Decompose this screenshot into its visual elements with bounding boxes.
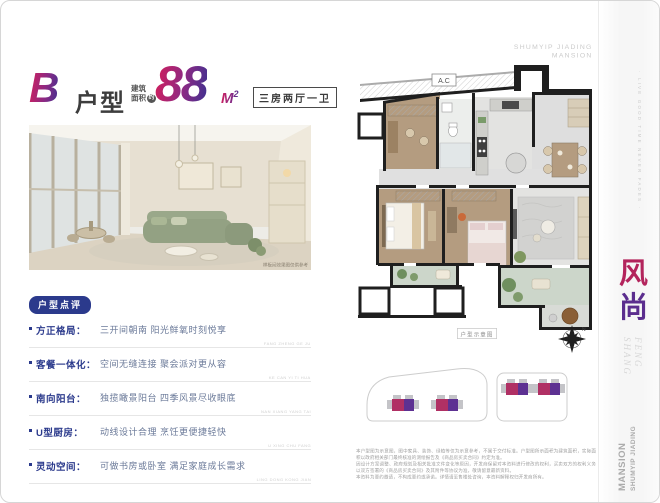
review-section: 户型点评 方正格局： 三开间朝南 阳光鲜氧时刻悦享 FANG ZHENG GE … bbox=[29, 295, 311, 484]
layout-tag: 三房两厅一卫 bbox=[253, 87, 337, 108]
ac-label: A.C bbox=[438, 78, 450, 85]
area-prefix-bottom: 面积 bbox=[131, 93, 146, 102]
feature-note: NAN XIANG YANG TAI bbox=[261, 409, 311, 414]
feature-label: 南向阳台： bbox=[36, 391, 100, 405]
feature-row: U型厨房： 动线设计合理 烹饪更便捷轻快 U XING CHU FANG bbox=[29, 425, 311, 450]
disclaimer-line: 本户型图为示意图，图中家具、装饰、绿植等仅为示意参考，不属于交付标准。户型图所示… bbox=[356, 448, 596, 461]
vertical-brand: MANSION SHUMYIP JIADING bbox=[617, 419, 639, 491]
unit-word: 户型 bbox=[75, 83, 125, 118]
building-outline-left bbox=[367, 369, 487, 422]
disclaimer-line: 因设计方案调整、政府规划及相关批准文件变化等原因，开发商保留对本资料进行修改的权… bbox=[356, 461, 596, 474]
brand-logo-line1: SHUMYIP JIADING bbox=[514, 43, 593, 52]
feature-row: 南向阳台： 独揽瞰景阳台 四季风景尽收眼底 NAN XIANG YANG TAI bbox=[29, 391, 311, 416]
brochure-page: B 户型 建筑 面积约 88 M2 三房两厅一卫 bbox=[0, 0, 660, 503]
side-tagline: · LIVE GOOD TIME NEVER FADES · bbox=[637, 71, 642, 210]
unit-title: B 户型 建筑 面积约 88 M2 三房两厅一卫 bbox=[29, 67, 313, 121]
keyplan-diagrams bbox=[361, 365, 573, 429]
fengshang-char-shang: 尚 bbox=[619, 293, 648, 322]
feature-desc: 空间无缝连接 聚会派对更从容 bbox=[100, 357, 227, 370]
photo-caption: 样板间效果图仅供参考 bbox=[263, 262, 308, 269]
disclaimer-line: 本资料为要约邀请，不构成要约或承诺。详情请至售楼处咨询，本资料解释权归开发商所有… bbox=[356, 474, 596, 481]
feature-label: 方正格局： bbox=[36, 323, 100, 337]
vertical-brand-shumyip: SHUMYIP JIADING bbox=[630, 426, 637, 491]
disclaimer-text: 本户型图为示意图，图中家具、装饰、绿植等仅为示意参考，不属于交付标准。户型图所示… bbox=[356, 448, 596, 481]
feature-note: FANG ZHENG GE JU bbox=[264, 341, 311, 346]
feature-label: 灵动空间： bbox=[36, 459, 100, 473]
feature-desc: 动线设计合理 烹饪更便捷轻快 bbox=[100, 425, 227, 438]
bullet-icon bbox=[29, 395, 32, 398]
brand-logo: SHUMYIP JIADING MANSION bbox=[514, 43, 593, 60]
floorplan-drawing: A.C bbox=[356, 59, 594, 333]
right-side-strip: · LIVE GOOD TIME NEVER FADES · 风 尚 FENG … bbox=[598, 1, 660, 503]
fengshang-english: FENG SHANG bbox=[621, 337, 643, 376]
area-unit: M2 bbox=[221, 89, 239, 107]
feature-note: KE CAN YI TI HUA bbox=[269, 375, 311, 380]
unit-letter: B bbox=[29, 67, 59, 109]
vertical-brand-mansion: MANSION bbox=[617, 443, 628, 491]
area-value: 88 bbox=[155, 59, 207, 109]
feature-desc: 三开间朝南 阳光鲜氧时刻悦享 bbox=[100, 323, 227, 336]
feature-desc: 独揽瞰景阳台 四季风景尽收眼底 bbox=[100, 391, 236, 404]
feature-note: LING DONG KONG JIAN bbox=[256, 477, 311, 482]
bullet-icon bbox=[29, 429, 32, 432]
plan-caption: 户型示意图 bbox=[455, 328, 499, 339]
fengshang-char-feng: 风 bbox=[619, 259, 648, 288]
compass-icon: N bbox=[557, 324, 587, 354]
review-badge: 户型点评 bbox=[29, 296, 91, 314]
bullet-icon bbox=[29, 327, 32, 330]
feature-row: 方正格局： 三开间朝南 阳光鲜氧时刻悦享 FANG ZHENG GE JU bbox=[29, 323, 311, 348]
feature-desc: 可做书房或卧室 满足家庭成长需求 bbox=[100, 459, 246, 472]
bullet-icon bbox=[29, 361, 32, 364]
feature-label: U型厨房： bbox=[36, 425, 100, 439]
feature-label: 客餐一体化： bbox=[36, 357, 100, 371]
interior-scene bbox=[29, 125, 311, 270]
bullet-icon bbox=[29, 463, 32, 466]
feature-row: 灵动空间： 可做书房或卧室 满足家庭成长需求 LING DONG KONG JI… bbox=[29, 459, 311, 484]
interior-render-photo: 样板间效果图仅供参考 bbox=[29, 125, 311, 270]
feature-row: 客餐一体化： 空间无缝连接 聚会派对更从容 KE CAN YI TI HUA bbox=[29, 357, 311, 382]
feature-note: U XING CHU FANG bbox=[268, 443, 311, 448]
compass-north-label: N bbox=[582, 327, 586, 333]
